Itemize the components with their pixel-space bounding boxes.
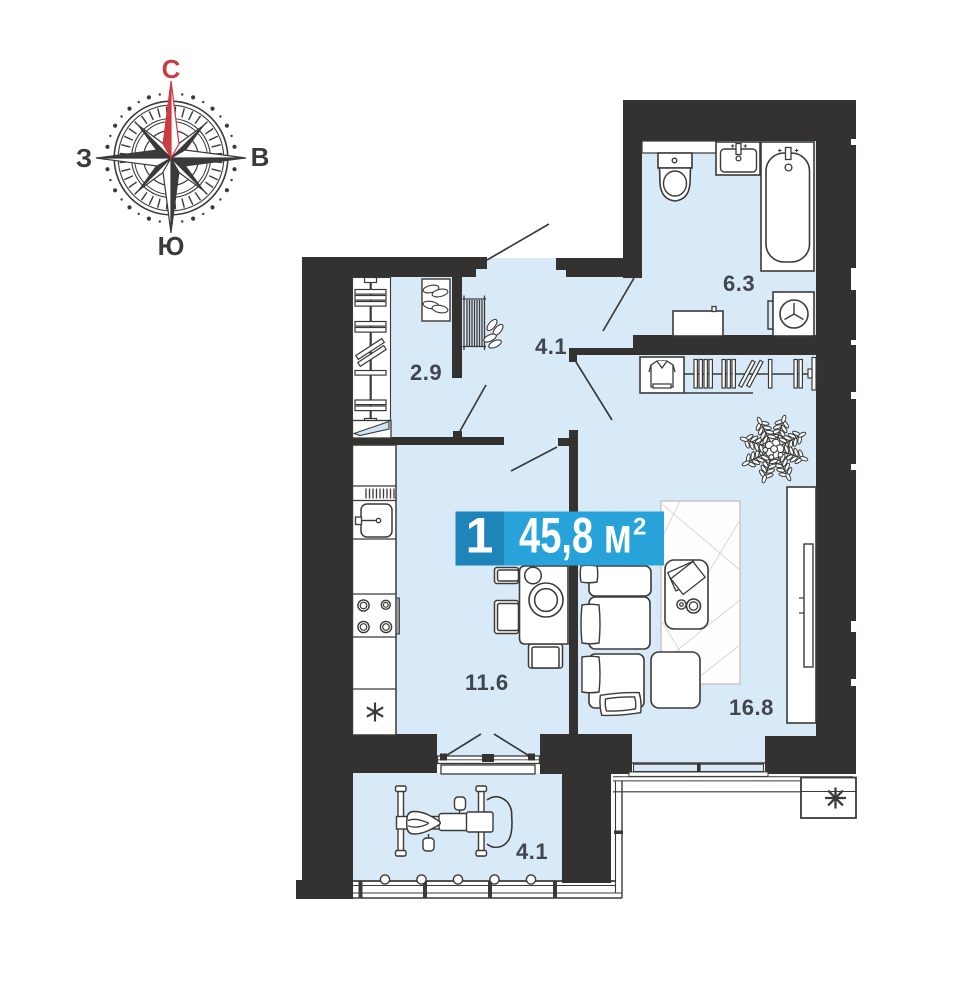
svg-text:С: С [162, 54, 181, 84]
svg-text:В: В [251, 142, 270, 172]
svg-text:1: 1 [466, 508, 494, 564]
svg-text:6.3: 6.3 [723, 271, 755, 296]
svg-text:2: 2 [633, 514, 646, 541]
svg-text:16.8: 16.8 [729, 695, 774, 720]
svg-text:Ю: Ю [158, 231, 185, 261]
svg-text:11.6: 11.6 [465, 670, 509, 695]
svg-text:2.9: 2.9 [410, 360, 442, 385]
svg-text:45,8 м: 45,8 м [519, 508, 632, 564]
svg-text:З: З [76, 143, 92, 173]
svg-text:4.1: 4.1 [535, 334, 567, 359]
svg-text:4.1: 4.1 [516, 839, 548, 864]
